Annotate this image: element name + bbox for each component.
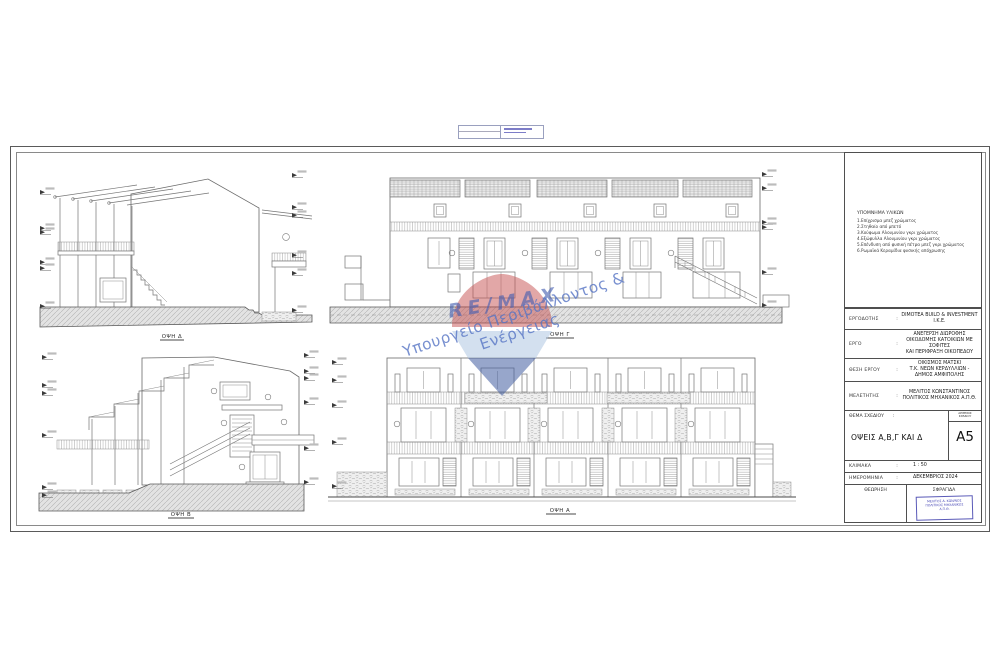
elevation-b-drawing: ΟΨΗ Β xyxy=(39,350,319,518)
location-value: ΟΙΚΙΣΜΟΣ ΜΑΤΣΚΙ Τ.Κ. ΝΕΩΝ ΚΕΡΔΥΛΛΙΩΝ - Δ… xyxy=(901,361,981,380)
elevation-b-label: ΟΨΗ Β xyxy=(171,512,191,518)
scale-label: ΚΛΙΜΑΚΑ xyxy=(845,464,893,469)
project-value: ΑΝΕΓΕΡΣΗ ΔΙΩΡΟΦΗΣ ΟΙΚΟΔΟΜΗΣ ΚΑΤΟΙΚΙΩΝ ΜΕ… xyxy=(901,332,981,357)
engineer-label: ΜΕΛΕΤΗΤΗΣ xyxy=(845,394,893,399)
elevation-a-label: ΟΨΗ Α xyxy=(550,508,570,514)
titleblock-row-engineer: ΜΕΛΕΤΗΤΗΣ : ΜΕΛΙΤΟΣ ΚΩΝΣΤΑΝΤΙΝΟΣ ΠΟΛΙΤΙΚ… xyxy=(844,381,982,411)
revision-strip xyxy=(458,125,544,139)
revision-strip-right-cell xyxy=(501,126,543,138)
titleblock-row-project: ΕΡΓΟ : ΑΝΕΓΕΡΣΗ ΔΙΩΡΟΦΗΣ ΟΙΚΟΔΟΜΗΣ ΚΑΤΟΙ… xyxy=(844,329,982,359)
date-label: ΗΜΕΡΟΜΗΝΙΑ xyxy=(845,476,893,481)
revision-strip-left-cell xyxy=(459,126,501,138)
materials-legend-box: ΥΠΟΜΝΗΜΑ ΥΛΙΚΩΝ 1.Επίχρισμα μπεζ χρώματο… xyxy=(844,152,982,308)
sheet-number: A5 xyxy=(949,429,981,445)
titleblock-row-location: ΘΕΣΗ ΕΡΓΟΥ : ΟΙΚΙΣΜΟΣ ΜΑΤΣΚΙ Τ.Κ. ΝΕΩΝ Κ… xyxy=(844,358,982,382)
title-block: ΥΠΟΜΝΗΜΑ ΥΛΙΚΩΝ 1.Επίχρισμα μπεζ χρώματο… xyxy=(844,152,982,523)
elevation-d-drawing: ΟΨΗ Δ xyxy=(40,170,312,340)
client-label: ΕΡΓΟΔΟΤΗΣ xyxy=(845,317,893,322)
stamp-box: ΣΦΡΑΓΙΔΑ ΜΕΛΙΤΟΣ Δ. ΚΩΝ/ΝΟΣ ΠΟΛΙΤΙΚΟΣ ΜΗ… xyxy=(907,485,981,522)
titleblock-row-subject: ΘΕΜΑ ΣΧΕΔΙΟΥ : ΟΨΕΙΣ Α,Β,Γ ΚΑΙ Δ ΑΡΙΘΜΟΣ… xyxy=(844,410,982,461)
location-label: ΘΕΣΗ ΕΡΓΟΥ xyxy=(845,368,893,373)
approval-box: ΘΕΩΡΗΣΗ xyxy=(845,485,907,522)
client-value: DIMOTEA BUILD & INVESTMENT Ι.Κ.Ε. xyxy=(901,313,981,325)
legend-item: 6.Ρωμαϊκά Κεραμίδια φυσικής απόχρωσης xyxy=(857,248,975,254)
scale-value: 1 : 50 xyxy=(901,463,981,469)
drawing-sheet-page: ΟΨΗ Δ xyxy=(0,0,1000,667)
titleblock-row-client: ΕΡΓΟΔΟΤΗΣ : DIMOTEA BUILD & INVESTMENT Ι… xyxy=(844,308,982,330)
project-label: ΕΡΓΟ xyxy=(845,342,893,347)
engineer-stamp: ΜΕΛΙΤΟΣ Δ. ΚΩΝ/ΝΟΣ ΠΟΛΙΤΙΚΟΣ ΜΗΧΑΝΙΚΟΣ Α… xyxy=(916,495,974,520)
stamp-label: ΣΦΡΑΓΙΔΑ xyxy=(907,488,981,493)
engineer-value: ΜΕΛΙΤΟΣ ΚΩΝΣΤΑΝΤΙΝΟΣ ΠΟΛΙΤΙΚΟΣ ΜΗΧΑΝΙΚΟΣ… xyxy=(901,390,981,402)
legend-title: ΥΠΟΜΝΗΜΑ ΥΛΙΚΩΝ xyxy=(857,211,975,216)
drawing-subject: ΟΨΕΙΣ Α,Β,Γ ΚΑΙ Δ xyxy=(851,433,949,442)
titleblock-row-approval-stamp: ΘΕΩΡΗΣΗ ΣΦΡΑΓΙΔΑ ΜΕΛΙΤΟΣ Δ. ΚΩΝ/ΝΟΣ ΠΟΛΙ… xyxy=(844,484,982,523)
date-value: ΔΕΚΕΜΒΡΙΟΣ 2024 xyxy=(901,475,981,481)
subject-label: ΘΕΜΑ ΣΧΕΔΙΟΥ : xyxy=(849,414,894,419)
elevation-d-label: ΟΨΗ Δ xyxy=(162,334,182,340)
sheet-number-caption: ΑΡΙΘΜΟΣ ΣΧΕΔΙΟΥ xyxy=(949,411,981,422)
sheet-number-box: ΑΡΙΘΜΟΣ ΣΧΕΔΙΟΥ A5 xyxy=(948,411,981,461)
approval-label: ΘΕΩΡΗΣΗ xyxy=(845,488,906,493)
